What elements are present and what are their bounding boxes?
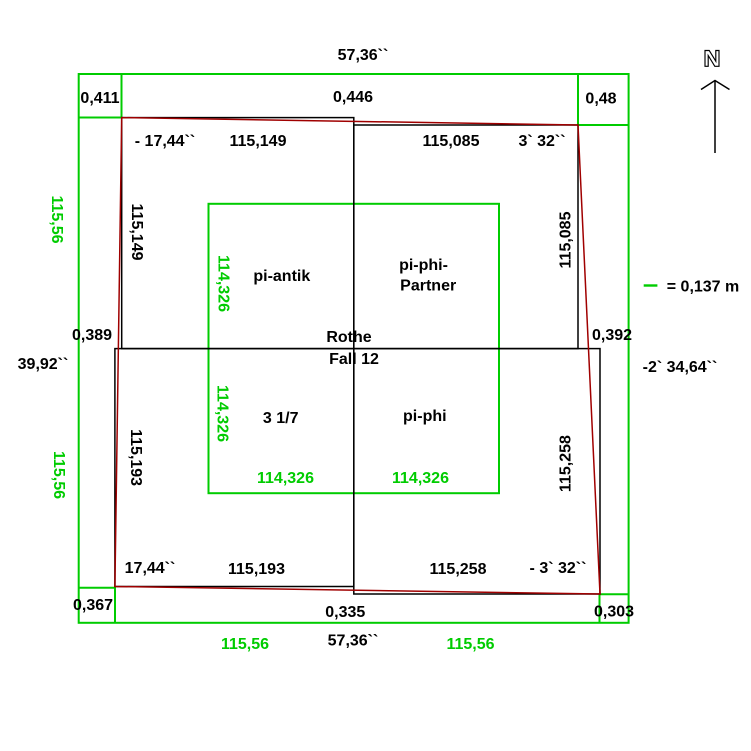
svg-text:57,36``: 57,36`` [328,632,379,649]
svg-text:-2` 34,64``: -2` 34,64`` [643,359,718,376]
svg-text:0,48: 0,48 [585,91,616,108]
svg-text:114,326: 114,326 [214,385,231,442]
svg-text:- 17,44``: - 17,44`` [135,133,195,150]
svg-text:pi-antik: pi-antik [253,268,310,285]
svg-text:114,326: 114,326 [392,470,449,487]
svg-text:pi-phi-: pi-phi- [399,257,448,274]
svg-text:115,56: 115,56 [50,451,67,499]
svg-text:0,367: 0,367 [73,597,113,614]
svg-text:114,326: 114,326 [257,470,314,487]
svg-text:115,149: 115,149 [230,133,287,150]
svg-text:0,446: 0,446 [333,89,373,106]
svg-text:3` 32``: 3` 32`` [518,133,565,150]
svg-text:115,085: 115,085 [423,133,480,150]
svg-text:Fall 12: Fall 12 [329,351,379,368]
svg-text:114,326: 114,326 [215,255,232,312]
svg-text:0,303: 0,303 [594,604,634,621]
svg-text:0,392: 0,392 [592,327,632,344]
svg-text:115,193: 115,193 [228,561,285,578]
svg-text:115,56: 115,56 [48,195,65,243]
svg-text:0,389: 0,389 [72,327,112,344]
svg-text:- 3` 32``: - 3` 32`` [530,560,587,577]
svg-text:0,411: 0,411 [80,90,119,107]
svg-text:57,36``: 57,36`` [338,47,389,64]
svg-text:Rothe: Rothe [326,329,371,346]
svg-text:0,335: 0,335 [325,604,365,621]
svg-text:= 0,137 m: = 0,137 m [667,279,740,296]
svg-text:pi-phi: pi-phi [403,408,447,425]
svg-text:115,258: 115,258 [430,561,487,578]
svg-text:3 1/7: 3 1/7 [263,410,299,427]
svg-text:115,149: 115,149 [128,204,145,261]
svg-text:Partner: Partner [400,278,456,295]
svg-text:115,085: 115,085 [557,211,574,268]
svg-text:39,92``: 39,92`` [18,356,69,373]
svg-text:115,258: 115,258 [557,435,574,492]
svg-text:115,193: 115,193 [127,429,144,486]
svg-text:115,56: 115,56 [446,636,494,653]
svg-text:17,44``: 17,44`` [125,560,176,577]
svg-text:115,56: 115,56 [221,636,269,653]
